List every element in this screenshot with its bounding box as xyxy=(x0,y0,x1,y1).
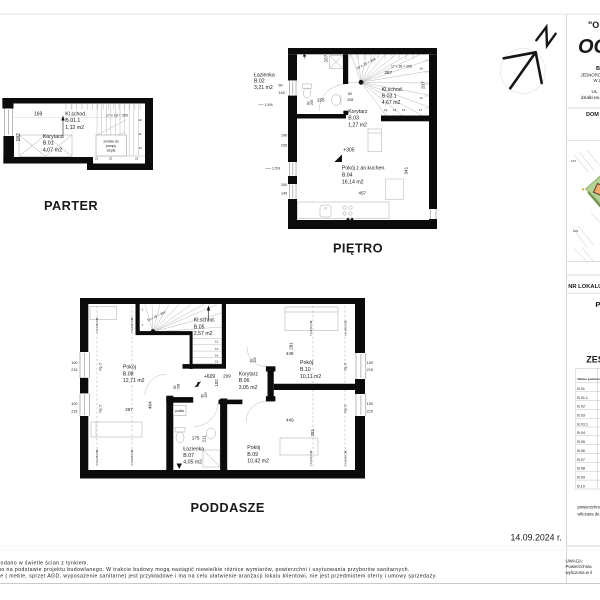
svg-text:15: 15 xyxy=(215,360,219,364)
svg-text:299: 299 xyxy=(223,373,231,378)
svg-text:JEDNORODZINNY DWULOKALOWY: JEDNORODZINNY DWULOKALOWY xyxy=(581,72,600,77)
svg-text:BUDYNEK: BUDYNEK xyxy=(596,66,600,72)
svg-text:B.03.1: B.03.1 xyxy=(577,422,588,426)
svg-text:Kl.schod.: Kl.schod. xyxy=(382,87,403,93)
svg-text:Np. 5: Np. 5 xyxy=(99,363,103,371)
svg-text:17 x 18 = 305: 17 x 18 = 305 xyxy=(106,114,128,118)
svg-text:100: 100 xyxy=(367,361,373,365)
svg-text:Wyposażenie ( meble, sprzęt AG: Wyposażenie ( meble, sprzęt AGD, wyposaż… xyxy=(0,573,437,579)
svg-text:17: 17 xyxy=(419,108,423,112)
svg-text:12,71 m2: 12,71 m2 xyxy=(123,378,145,384)
svg-text:B.09: B.09 xyxy=(577,476,585,480)
svg-text:NR LOKALU B: NR LOKALU B xyxy=(568,284,600,290)
svg-text:Korytarz: Korytarz xyxy=(43,134,63,140)
svg-text:DOM B: DOM B xyxy=(586,112,600,118)
svg-text:1,27 m2: 1,27 m2 xyxy=(348,122,367,128)
svg-text:B.01: B.01 xyxy=(43,141,54,147)
svg-text:Łazienka: Łazienka xyxy=(254,73,275,79)
svg-text:215: 215 xyxy=(367,368,373,372)
svg-text:10,11 m2: 10,11 m2 xyxy=(300,374,321,380)
svg-text:B.04: B.04 xyxy=(577,431,585,435)
svg-text:1,5%: 1,5% xyxy=(265,103,274,107)
svg-text:207: 207 xyxy=(420,81,425,89)
svg-text:287: 287 xyxy=(385,70,393,75)
svg-text:B.02: B.02 xyxy=(254,79,265,85)
svg-text:B.02: B.02 xyxy=(577,405,585,409)
svg-text:H+160 CM: H+160 CM xyxy=(343,450,347,465)
svg-text:10,42 m2: 10,42 m2 xyxy=(247,459,269,465)
svg-text:4,07 m2: 4,07 m2 xyxy=(43,148,62,154)
svg-text:211: 211 xyxy=(202,435,207,443)
svg-text:UL. OGRODOWA: UL. OGRODOWA xyxy=(592,89,600,94)
svg-text:H+140 CM: H+140 CM xyxy=(95,317,99,332)
svg-text:H+140 CM: H+140 CM xyxy=(95,449,99,464)
svg-text:341: 341 xyxy=(404,166,409,174)
svg-text:B.06: B.06 xyxy=(239,378,250,384)
svg-text:12: 12 xyxy=(215,340,219,344)
svg-text:Pokój z an.kuchen.: Pokój z an.kuchen. xyxy=(342,165,386,171)
svg-text:10: 10 xyxy=(420,67,424,71)
svg-text:Pokój: Pokój xyxy=(247,445,260,451)
svg-text:215: 215 xyxy=(367,409,373,413)
svg-text:205: 205 xyxy=(310,99,314,105)
svg-text:60: 60 xyxy=(348,92,352,96)
svg-text:60: 60 xyxy=(279,84,283,88)
svg-text:100: 100 xyxy=(281,183,287,187)
svg-text:B.07: B.07 xyxy=(577,458,585,462)
svg-text:145: 145 xyxy=(281,192,287,196)
svg-text:205: 205 xyxy=(253,357,257,363)
svg-text:B.01.1: B.01.1 xyxy=(577,396,588,400)
svg-text:22: 22 xyxy=(109,157,113,161)
svg-text:464: 464 xyxy=(148,401,153,409)
svg-text:B.04: B.04 xyxy=(342,172,353,178)
svg-text:H+220 CM: H+220 CM xyxy=(130,317,134,332)
svg-text:B.03: B.03 xyxy=(348,116,359,122)
svg-text:Korytarz: Korytarz xyxy=(348,109,368,115)
svg-text:190: 190 xyxy=(281,133,287,137)
svg-text:15: 15 xyxy=(393,108,397,112)
svg-text:B.01.1: B.01.1 xyxy=(65,118,80,124)
svg-text:ZESTAWIENIE: ZESTAWIENIE xyxy=(586,355,600,365)
svg-text:działki ew. nr 123/4: działki ew. nr 123/4 xyxy=(581,95,600,100)
svg-text:Powierzchnia: Powierzchnia xyxy=(566,564,593,569)
svg-text:PIĘTRO: PIĘTRO xyxy=(333,240,383,255)
svg-text:1,12 m2: 1,12 m2 xyxy=(65,125,84,131)
svg-text:205: 205 xyxy=(204,392,208,398)
svg-text:wliczana do: wliczana do xyxy=(578,511,600,516)
svg-text:281: 281 xyxy=(310,428,315,436)
svg-text:Korytarz: Korytarz xyxy=(239,372,259,378)
svg-text:2,57 m2: 2,57 m2 xyxy=(194,331,213,337)
svg-text:449: 449 xyxy=(286,417,294,422)
svg-text:B.01: B.01 xyxy=(577,387,585,391)
svg-text:100: 100 xyxy=(71,361,77,365)
svg-text:215: 215 xyxy=(71,409,77,413)
svg-text:W ZABUDOWIE: W ZABUDOWIE xyxy=(594,78,600,83)
svg-text:+609: +609 xyxy=(204,374,215,380)
svg-text:16: 16 xyxy=(402,108,406,112)
svg-text:wyliczona w ś: wyliczona w ś xyxy=(566,570,594,575)
svg-text:16,14 m2: 16,14 m2 xyxy=(342,180,364,186)
svg-text:Numer pomieszczenia: Numer pomieszczenia xyxy=(578,377,600,381)
svg-text:B.08: B.08 xyxy=(123,372,134,378)
svg-text:Kl.schod.: Kl.schod. xyxy=(65,112,86,118)
svg-text:Wymiary podano w świetle ścian: Wymiary podano w świetle ścian z tynkiem… xyxy=(0,560,89,566)
svg-text:102: 102 xyxy=(214,379,219,387)
svg-text:powierzchnia: powierzchnia xyxy=(578,504,600,509)
svg-text:449: 449 xyxy=(286,351,294,356)
svg-text:14: 14 xyxy=(215,353,219,357)
svg-text:B.07: B.07 xyxy=(183,453,194,459)
svg-text:281: 281 xyxy=(289,342,294,350)
svg-text:Kl.schod.: Kl.schod. xyxy=(194,318,215,324)
svg-text:B.09: B.09 xyxy=(247,452,258,458)
svg-text:B.10: B.10 xyxy=(577,484,585,488)
svg-text:17 x 18 = 305: 17 x 18 = 305 xyxy=(391,65,412,69)
svg-text:230: 230 xyxy=(281,143,287,147)
svg-text:Łazienka: Łazienka xyxy=(183,446,204,452)
svg-text:pralka: pralka xyxy=(175,409,184,413)
svg-text:3,05 m2: 3,05 m2 xyxy=(239,385,258,391)
svg-text:ciepła: ciepła xyxy=(107,149,116,153)
svg-text:13: 13 xyxy=(215,347,219,351)
svg-text:175: 175 xyxy=(192,436,200,441)
svg-text:+305: +305 xyxy=(343,147,354,153)
svg-text:20: 20 xyxy=(88,157,92,161)
svg-text:1,5%: 1,5% xyxy=(272,167,281,171)
svg-text:Pokój: Pokój xyxy=(300,360,313,366)
svg-text:267: 267 xyxy=(125,407,133,412)
svg-text:23: 23 xyxy=(135,157,139,161)
svg-text:B.06: B.06 xyxy=(577,449,585,453)
svg-text:10: 10 xyxy=(139,118,143,122)
svg-text:169: 169 xyxy=(34,112,43,118)
svg-text:145: 145 xyxy=(279,91,285,95)
svg-text:H+220 CM: H+220 CM xyxy=(309,450,313,465)
svg-text:12/9: 12/9 xyxy=(573,229,579,233)
svg-text:B.05: B.05 xyxy=(194,324,205,330)
svg-text:215: 215 xyxy=(71,368,77,372)
svg-text:H+220 CM: H+220 CM xyxy=(309,320,313,335)
svg-text:B.03: B.03 xyxy=(577,414,585,418)
svg-text:12: 12 xyxy=(420,96,424,100)
svg-text:PODDASZE: PODDASZE xyxy=(191,500,265,515)
svg-text:"O: "O xyxy=(588,20,599,30)
svg-text:B.05: B.05 xyxy=(577,440,585,444)
svg-text:4,05 m2: 4,05 m2 xyxy=(183,460,202,466)
svg-text:182: 182 xyxy=(16,133,22,142)
svg-text:155: 155 xyxy=(317,97,325,102)
svg-text:100: 100 xyxy=(71,402,77,406)
svg-text:B.10: B.10 xyxy=(300,367,311,373)
svg-text:21: 21 xyxy=(95,157,99,161)
svg-text:457: 457 xyxy=(358,191,366,196)
svg-text:208: 208 xyxy=(177,383,181,389)
svg-text:Rzuty wykonano na podstawie pr: Rzuty wykonano na podstawie projektu bud… xyxy=(0,567,410,573)
svg-text:H+160 CM: H+160 CM xyxy=(343,320,347,335)
svg-text:OGRODY: OGRODY xyxy=(578,36,600,58)
svg-text:Pokój: Pokój xyxy=(123,365,136,371)
svg-text:207: 207 xyxy=(324,54,329,62)
svg-text:PARTER: PARTER xyxy=(44,198,98,213)
svg-text:H+220 CM: H+220 CM xyxy=(130,449,134,464)
svg-text:pompy: pompy xyxy=(106,144,116,148)
svg-text:zestaw do: zestaw do xyxy=(103,140,118,144)
svg-text:4,67 m2: 4,67 m2 xyxy=(382,100,401,106)
svg-text:100: 100 xyxy=(367,402,373,406)
svg-text:Np. 5: Np. 5 xyxy=(99,405,103,413)
svg-text:208: 208 xyxy=(347,98,353,102)
svg-text:PODDASZE: PODDASZE xyxy=(595,300,600,309)
svg-text:UWAGA:: UWAGA: xyxy=(566,559,584,564)
svg-text:12/7: 12/7 xyxy=(571,159,577,163)
svg-text:Np. 5: Np. 5 xyxy=(344,405,348,413)
svg-text:B.03.1: B.03.1 xyxy=(382,94,397,100)
svg-text:B.08: B.08 xyxy=(577,467,585,471)
svg-text:14: 14 xyxy=(384,108,388,112)
svg-text:3,21 m2: 3,21 m2 xyxy=(254,85,273,91)
svg-text:12: 12 xyxy=(139,146,143,150)
svg-text:Np. 5: Np. 5 xyxy=(344,363,348,371)
svg-text:11: 11 xyxy=(139,132,142,136)
svg-text:14.09.2024 r.: 14.09.2024 r. xyxy=(511,533,562,543)
